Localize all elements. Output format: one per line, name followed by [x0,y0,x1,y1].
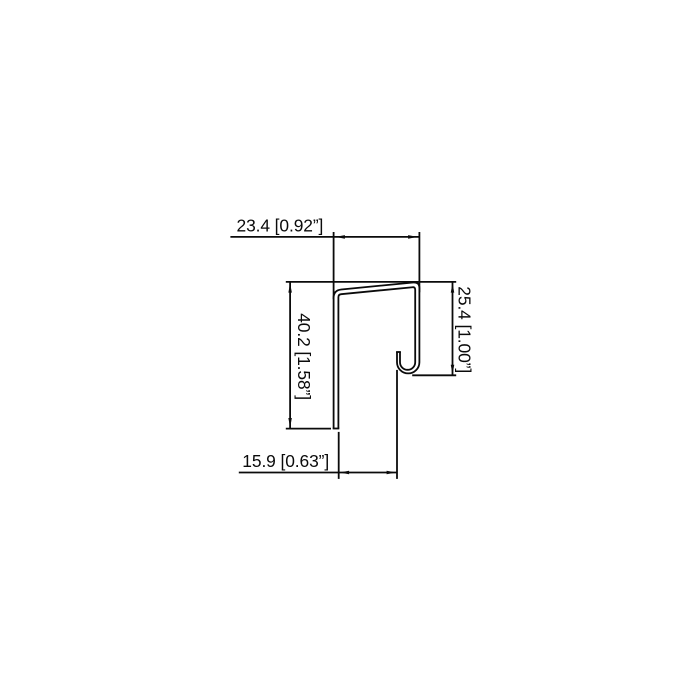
svg-text:25.4 [1.00”]: 25.4 [1.00”] [454,286,474,373]
svg-text:40.2 [1.58”]: 40.2 [1.58”] [294,313,314,400]
svg-text:23.4 [0.92”]: 23.4 [0.92”] [237,215,324,235]
svg-text:15.9 [0.63”]: 15.9 [0.63”] [242,451,329,471]
